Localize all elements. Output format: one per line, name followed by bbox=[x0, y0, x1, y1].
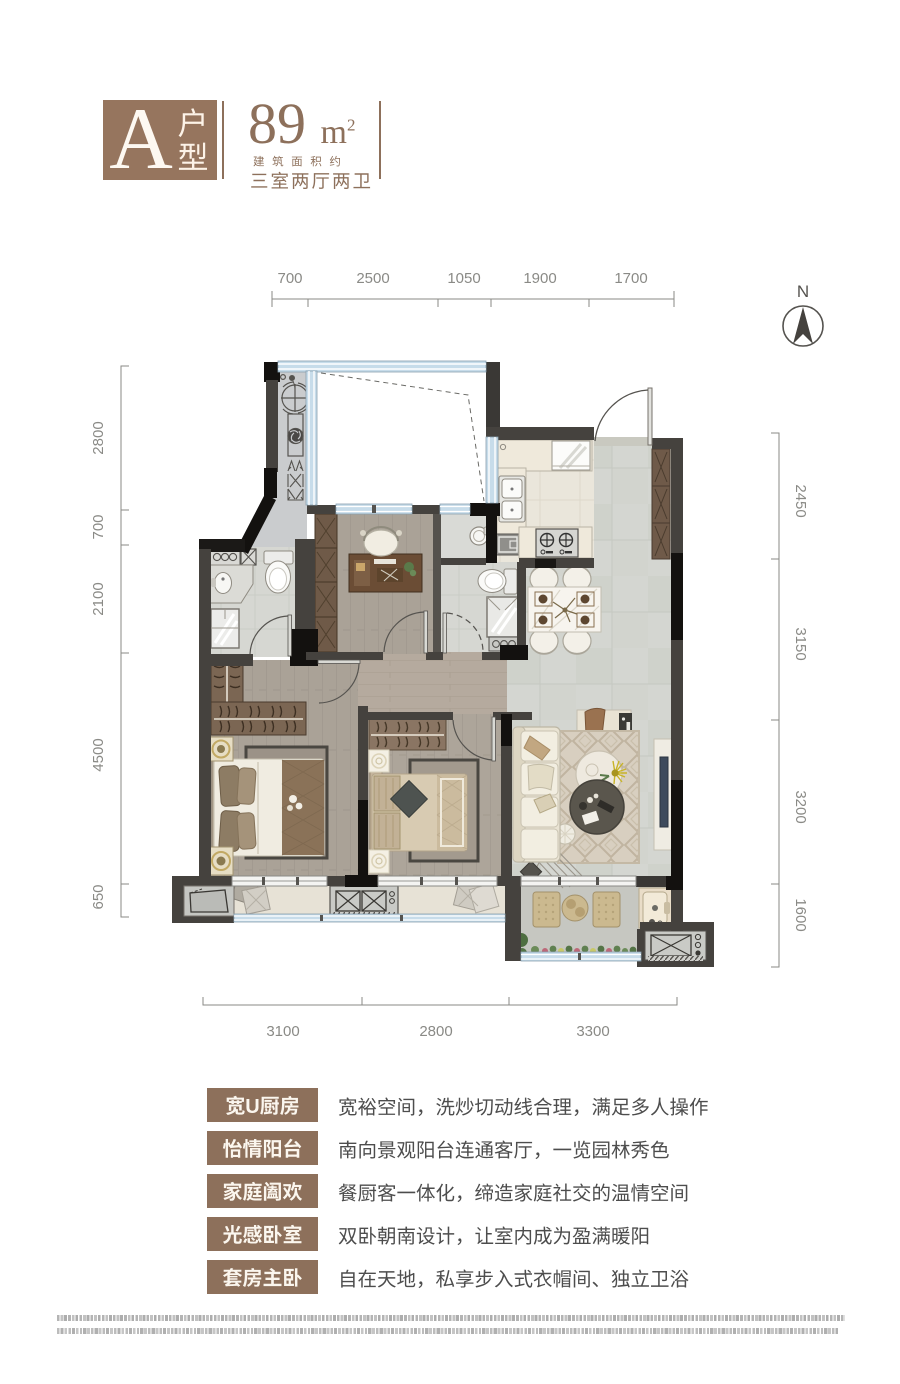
svg-text:2800: 2800 bbox=[419, 1023, 452, 1040]
svg-text:700: 700 bbox=[90, 514, 107, 539]
svg-text:U: U bbox=[245, 1096, 259, 1118]
svg-text:2100: 2100 bbox=[90, 582, 107, 615]
svg-text:3150: 3150 bbox=[792, 627, 809, 660]
svg-text:650: 650 bbox=[90, 884, 107, 909]
svg-text:3300: 3300 bbox=[576, 1023, 609, 1040]
svg-text:3200: 3200 bbox=[792, 790, 809, 823]
svg-text:2450: 2450 bbox=[792, 484, 809, 517]
svg-text:N: N bbox=[797, 282, 809, 301]
svg-text:2800: 2800 bbox=[90, 421, 107, 454]
svg-text:3100: 3100 bbox=[266, 1023, 299, 1040]
svg-text:1050: 1050 bbox=[447, 270, 480, 287]
svg-text:4500: 4500 bbox=[90, 738, 107, 771]
svg-text:1600: 1600 bbox=[792, 898, 809, 931]
svg-text:700: 700 bbox=[277, 270, 302, 287]
svg-text:1700: 1700 bbox=[614, 270, 647, 287]
svg-text:1900: 1900 bbox=[523, 270, 556, 287]
svg-text:2500: 2500 bbox=[356, 270, 389, 287]
